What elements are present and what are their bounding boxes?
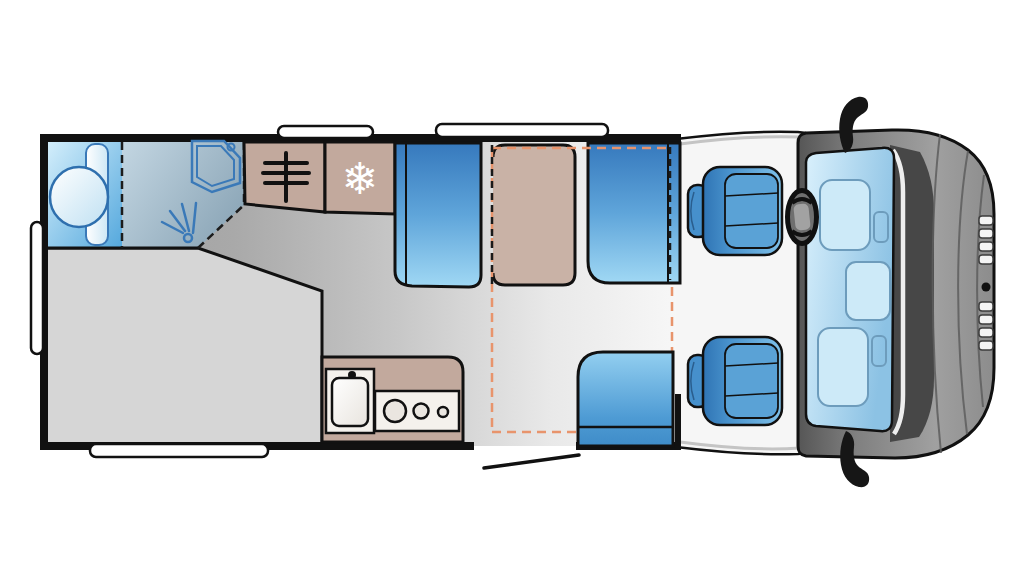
dashboard-panel-middle	[846, 262, 890, 320]
cab-front	[788, 130, 995, 458]
rear-bed	[48, 248, 322, 442]
washbasin	[50, 167, 108, 227]
driver-cushion	[725, 174, 778, 248]
steering-hub	[793, 203, 811, 230]
entry-door-swing-line	[484, 455, 579, 468]
cabinets: ❄	[244, 142, 395, 214]
rear-window	[31, 222, 43, 354]
burner-small	[438, 407, 448, 417]
motorhome-floorplan: ❄	[0, 0, 1024, 576]
tap-icon	[348, 371, 356, 379]
bench-seat-rearward	[588, 143, 680, 283]
floorplan-canvas: ❄	[0, 0, 1024, 576]
snowflake-icon: ❄	[342, 153, 379, 204]
grille-badge	[982, 283, 991, 292]
roof-vent-large	[436, 124, 608, 137]
washroom	[48, 141, 244, 248]
kitchen	[322, 357, 463, 442]
steering-wheel	[788, 191, 817, 244]
burner-large	[384, 400, 406, 422]
bench-seat-forward	[395, 143, 481, 287]
sink	[332, 378, 368, 426]
side-seat	[578, 352, 673, 446]
dashboard-panel-top	[820, 180, 870, 250]
burner-medium	[414, 404, 429, 419]
dinette	[395, 143, 680, 287]
passenger-cushion	[725, 344, 778, 418]
cab-bulkhead-bottom	[675, 394, 681, 450]
side-window-bottom	[90, 444, 268, 457]
a-pillar-shadow	[890, 145, 934, 442]
roof-vent-small	[278, 126, 373, 138]
dinette-table	[493, 145, 575, 285]
dashboard-panel-bottom	[818, 328, 868, 406]
